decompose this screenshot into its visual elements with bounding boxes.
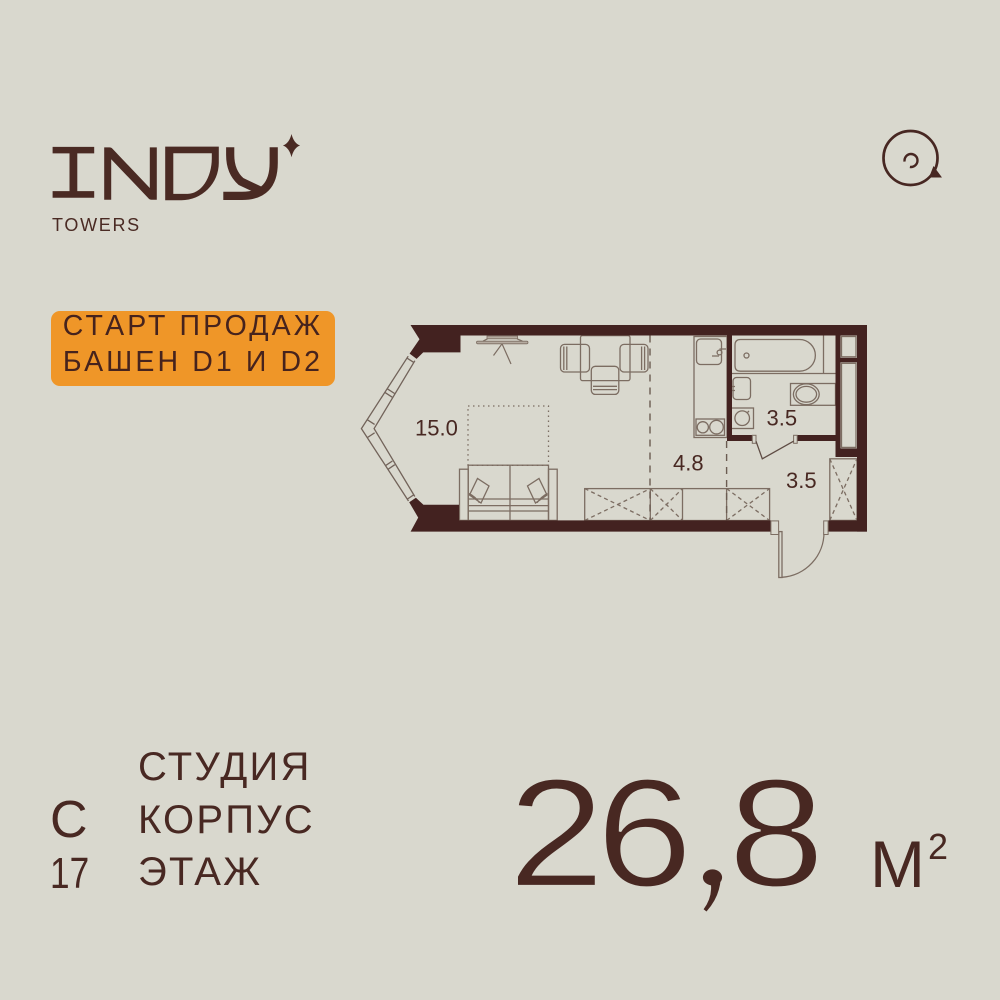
svg-text:4.8: 4.8 (673, 450, 704, 475)
svg-text:3.5: 3.5 (786, 468, 817, 493)
svg-text:3.5: 3.5 (767, 406, 798, 431)
svg-text:15.0: 15.0 (415, 416, 458, 441)
